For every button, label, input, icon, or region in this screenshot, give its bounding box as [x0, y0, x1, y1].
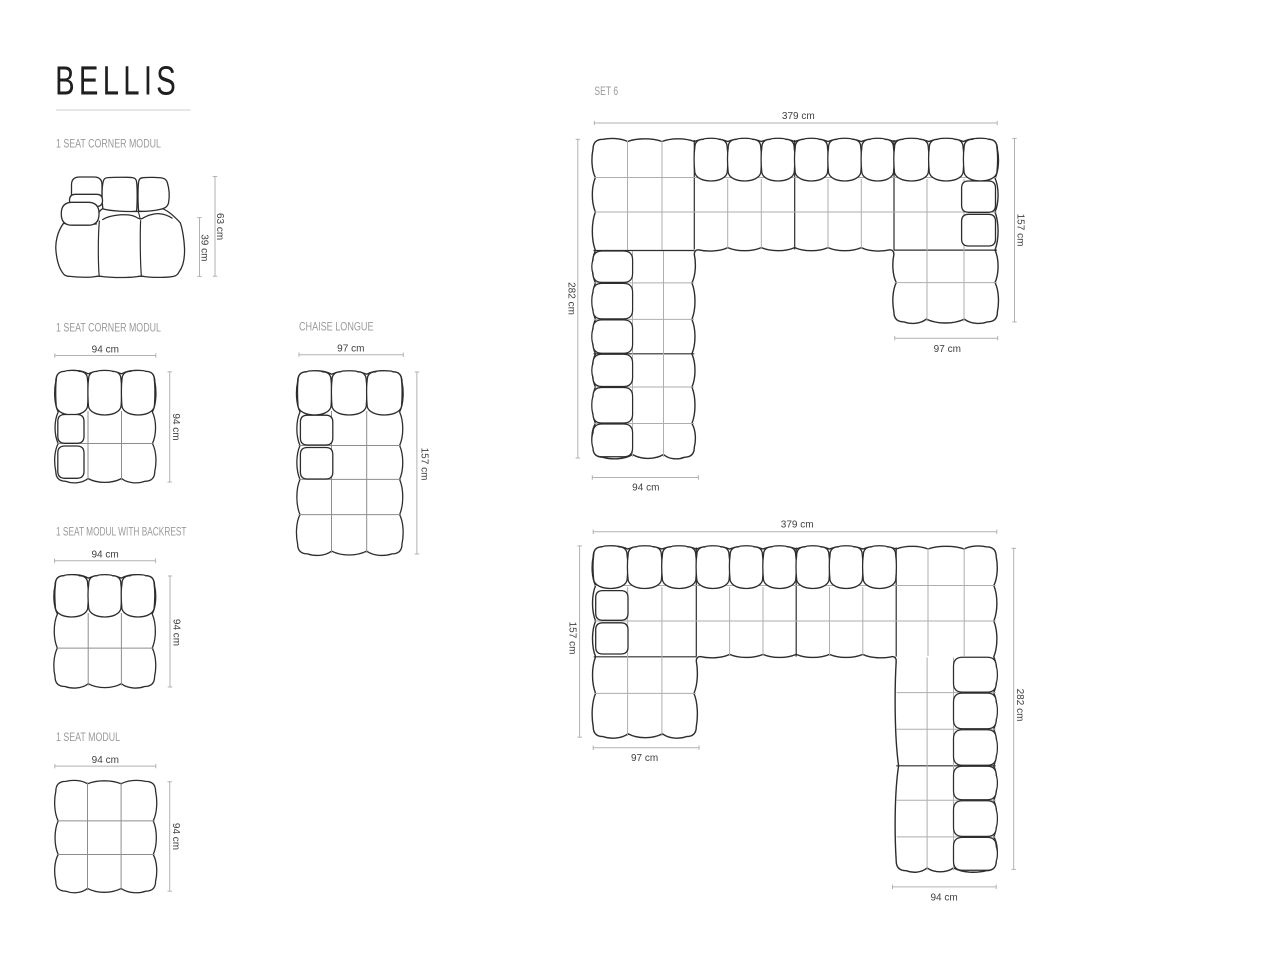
- svg-text:97 cm: 97 cm: [337, 344, 364, 355]
- svg-text:39 cm: 39 cm: [199, 234, 210, 261]
- svg-text:CHAISE LONGUE: CHAISE LONGUE: [299, 321, 374, 334]
- svg-text:94 cm: 94 cm: [632, 483, 659, 494]
- svg-text:94 cm: 94 cm: [170, 619, 181, 646]
- svg-text:94 cm: 94 cm: [170, 823, 181, 850]
- svg-text:282 cm: 282 cm: [1014, 689, 1025, 722]
- svg-text:94 cm: 94 cm: [91, 550, 118, 561]
- svg-text:94 cm: 94 cm: [170, 413, 181, 440]
- svg-text:1 SEAT CORNER MODUL: 1 SEAT CORNER MODUL: [56, 322, 161, 335]
- svg-text:97 cm: 97 cm: [934, 344, 961, 355]
- svg-text:1 SEAT MODUL WITH BACKREST: 1 SEAT MODUL WITH BACKREST: [56, 526, 187, 539]
- svg-text:94 cm: 94 cm: [92, 755, 119, 766]
- svg-text:282 cm: 282 cm: [565, 282, 576, 315]
- svg-text:94 cm: 94 cm: [92, 344, 119, 355]
- svg-text:BELLIS: BELLIS: [55, 57, 180, 103]
- svg-text:157 cm: 157 cm: [1015, 214, 1026, 247]
- svg-text:157 cm: 157 cm: [567, 622, 578, 655]
- svg-text:SET 6: SET 6: [594, 85, 618, 98]
- svg-text:1 SEAT CORNER MODUL: 1 SEAT CORNER MODUL: [56, 137, 161, 150]
- svg-text:94 cm: 94 cm: [930, 892, 957, 903]
- svg-text:379 cm: 379 cm: [782, 111, 815, 122]
- svg-text:157 cm: 157 cm: [418, 448, 429, 481]
- svg-text:97 cm: 97 cm: [631, 753, 658, 764]
- svg-text:1 SEAT MODUL: 1 SEAT MODUL: [56, 731, 120, 744]
- svg-text:379 cm: 379 cm: [781, 519, 814, 530]
- svg-text:63 cm: 63 cm: [214, 213, 225, 240]
